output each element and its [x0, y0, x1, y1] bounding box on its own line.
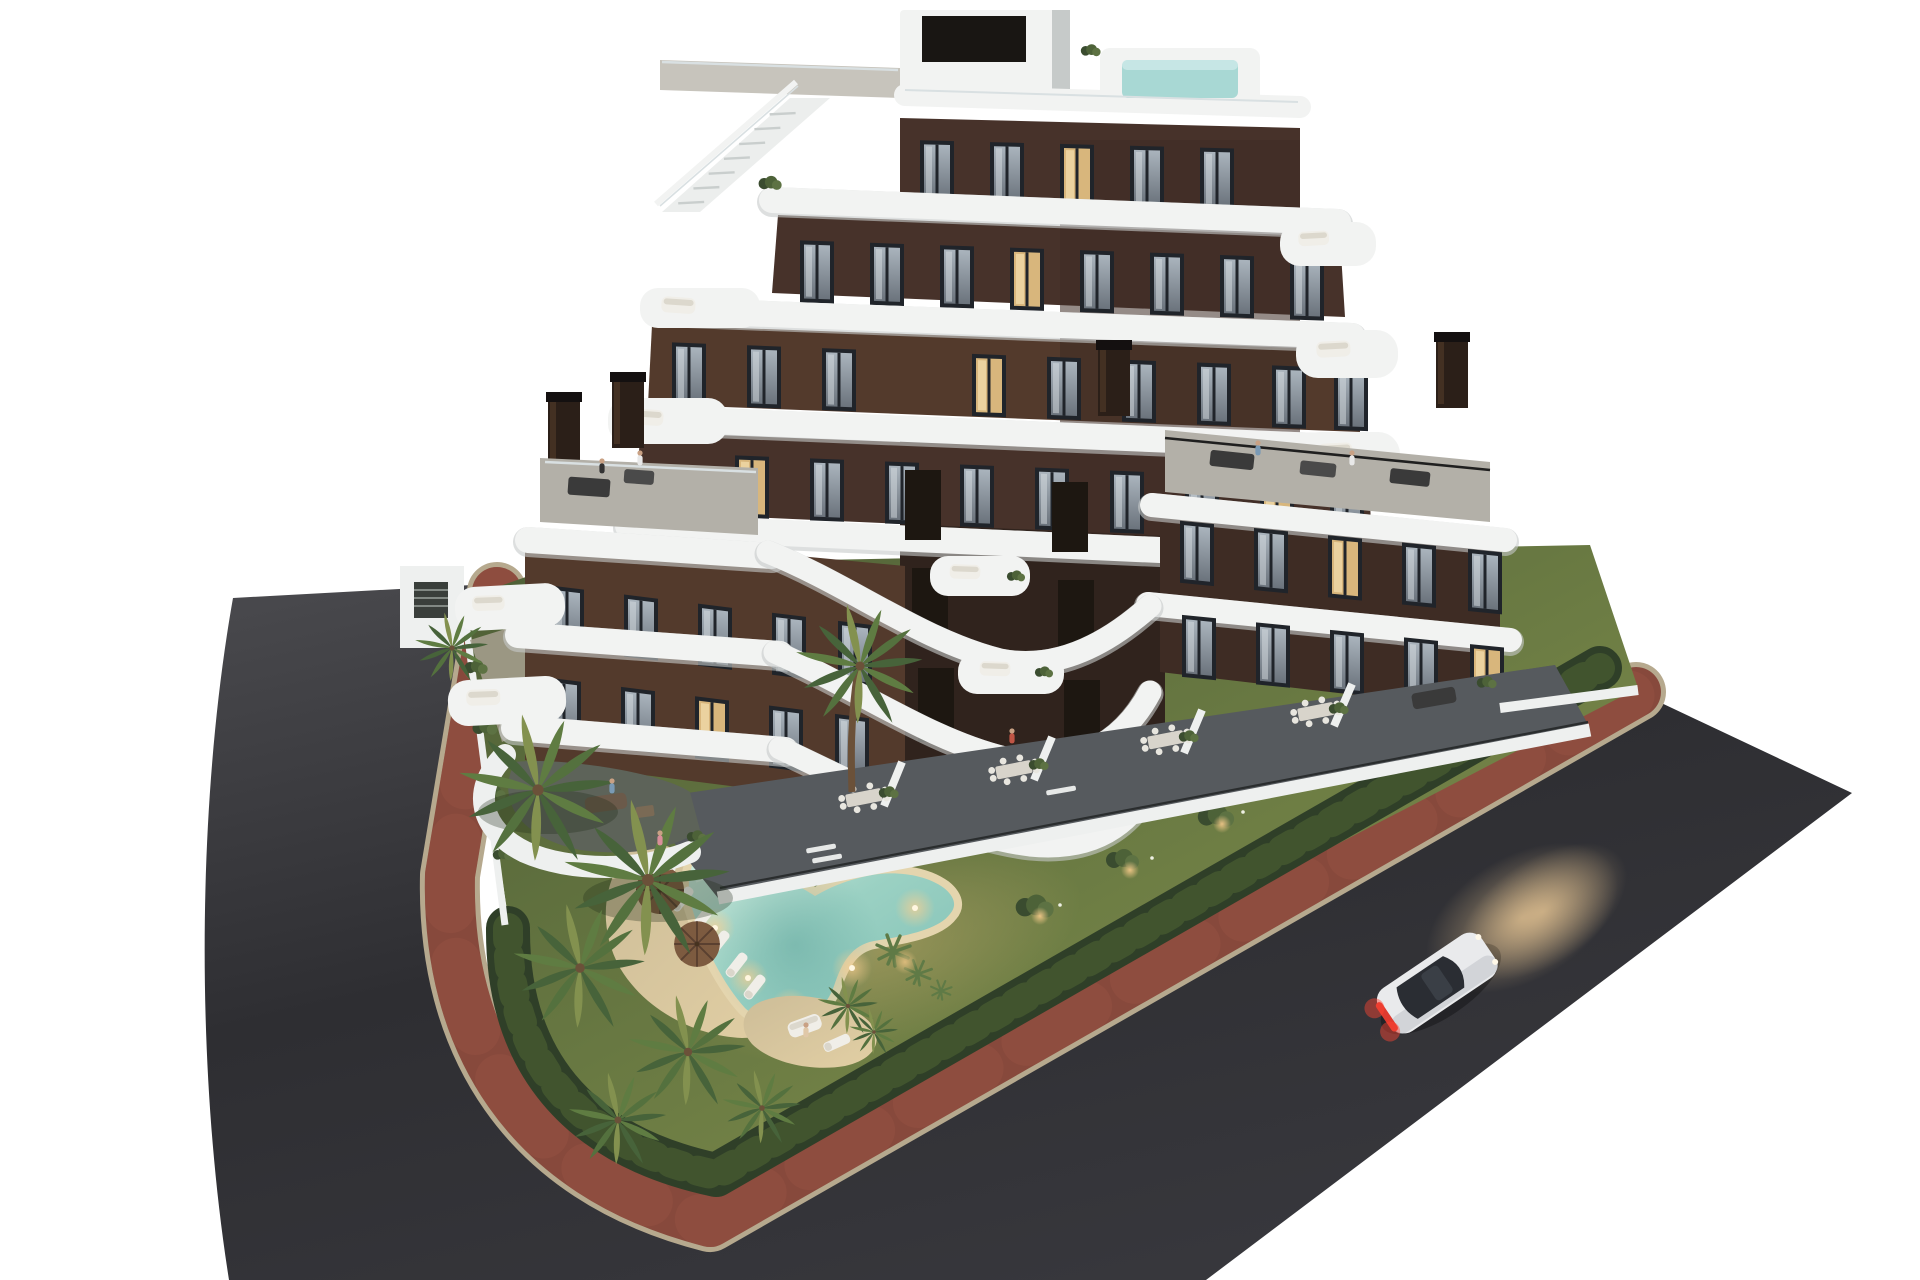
- person-pool-deck: [657, 830, 662, 845]
- balcony: [454, 582, 566, 632]
- person-roof-right: [1349, 450, 1354, 465]
- stair-tower-opening: [922, 16, 1026, 62]
- roof-table: [624, 469, 655, 485]
- render-canvas: [0, 0, 1920, 1280]
- scene-svg: [0, 0, 1920, 1280]
- chimney: [610, 372, 646, 448]
- person-terrace: [1009, 728, 1014, 743]
- person-roof-left: [599, 458, 604, 473]
- roof-sofa: [567, 477, 610, 498]
- person-lounger: [803, 1022, 808, 1037]
- chimney: [1096, 340, 1132, 416]
- chimney: [1434, 332, 1470, 408]
- vent-grille: [414, 582, 448, 618]
- person-patio: [609, 778, 614, 793]
- balcony: [640, 288, 760, 328]
- person-roof-right: [1255, 440, 1260, 455]
- balcony: [1280, 222, 1376, 266]
- chimney: [546, 392, 582, 468]
- stair-tower-shade: [1052, 10, 1070, 98]
- balcony: [447, 675, 567, 727]
- person-roof-left: [637, 450, 642, 465]
- parasol: [674, 921, 720, 967]
